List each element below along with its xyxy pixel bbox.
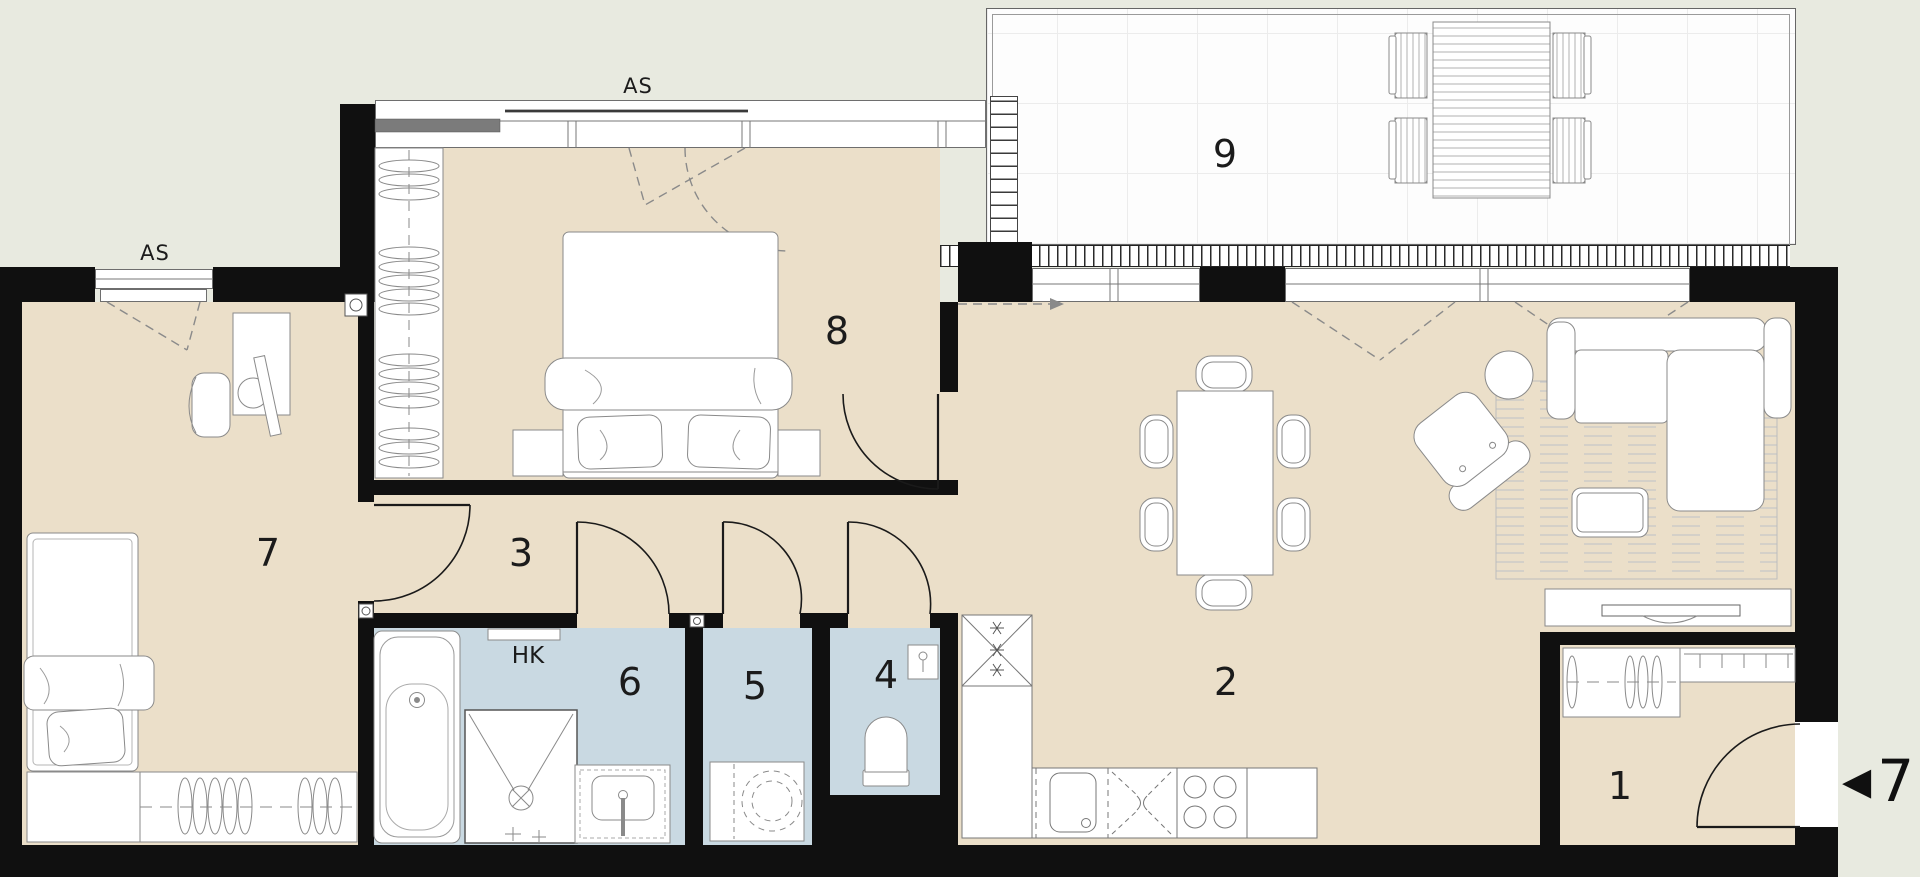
- entrance-apartment-number: 7: [1877, 752, 1914, 810]
- wall: [358, 302, 374, 502]
- wall: [22, 267, 95, 302]
- floor-room5: [703, 628, 812, 845]
- wall: [1795, 827, 1838, 877]
- room-label-7: 7: [256, 531, 280, 575]
- room-label-5: 5: [743, 664, 767, 708]
- floor-room7: [22, 302, 358, 845]
- floor-door-gap-bath6: [577, 613, 669, 628]
- window-label-left: AS: [140, 241, 170, 265]
- floor-hallway: [374, 495, 958, 613]
- room-label-8: 8: [825, 309, 849, 353]
- floor-room8: [375, 148, 940, 480]
- hk-label: HK: [512, 643, 544, 669]
- window-room7: [100, 289, 207, 302]
- floor-plan: 9 8 7 3 6 5 4 2 1 HK AS AS ◀ 7: [0, 0, 1920, 877]
- wall: [1200, 267, 1285, 302]
- wall: [1690, 267, 1795, 302]
- floor-door-gap-room4: [848, 613, 930, 628]
- wall: [940, 302, 958, 392]
- window-room8: [375, 100, 986, 148]
- terrace-railing: [940, 245, 1790, 267]
- wall: [1540, 632, 1802, 645]
- floor-hall-opening: [940, 495, 958, 613]
- floor-door-gap-room8: [940, 392, 958, 490]
- window-living-a: [1032, 268, 1200, 302]
- wall: [685, 628, 703, 845]
- wall: [340, 104, 375, 302]
- wall: [1540, 645, 1560, 845]
- wall: [358, 601, 374, 845]
- window-label-top: AS: [623, 74, 653, 98]
- window-room7-sill: [95, 269, 213, 289]
- entrance-door-opening: [1795, 722, 1838, 827]
- wall: [1795, 267, 1838, 722]
- room-label-6: 6: [618, 660, 642, 704]
- wall: [812, 628, 830, 845]
- wall: [930, 613, 958, 628]
- wall: [940, 613, 958, 845]
- room-label-3: 3: [509, 531, 533, 575]
- terrace-parapet-line: [992, 14, 1790, 245]
- floor-living: [958, 270, 1795, 845]
- wall: [0, 267, 22, 877]
- wall: [669, 613, 723, 628]
- room-label-1: 1: [1608, 764, 1632, 808]
- apartment-entrance-marker: ◀ 7: [1842, 752, 1914, 810]
- floor-door-gap-room5: [723, 613, 800, 628]
- wall: [830, 795, 940, 845]
- wall: [800, 613, 848, 628]
- wall: [0, 845, 1838, 877]
- window-living-b: [1285, 268, 1690, 302]
- floor-door-gap-room7: [358, 502, 374, 601]
- room-label-9: 9: [1213, 132, 1237, 176]
- room-label-2: 2: [1214, 660, 1238, 704]
- wall: [374, 480, 958, 495]
- room-label-4: 4: [874, 653, 898, 697]
- wall: [958, 242, 1032, 302]
- terrace-ladder: [990, 96, 1018, 246]
- wall: [374, 613, 577, 628]
- entrance-arrow-icon: ◀: [1842, 762, 1871, 800]
